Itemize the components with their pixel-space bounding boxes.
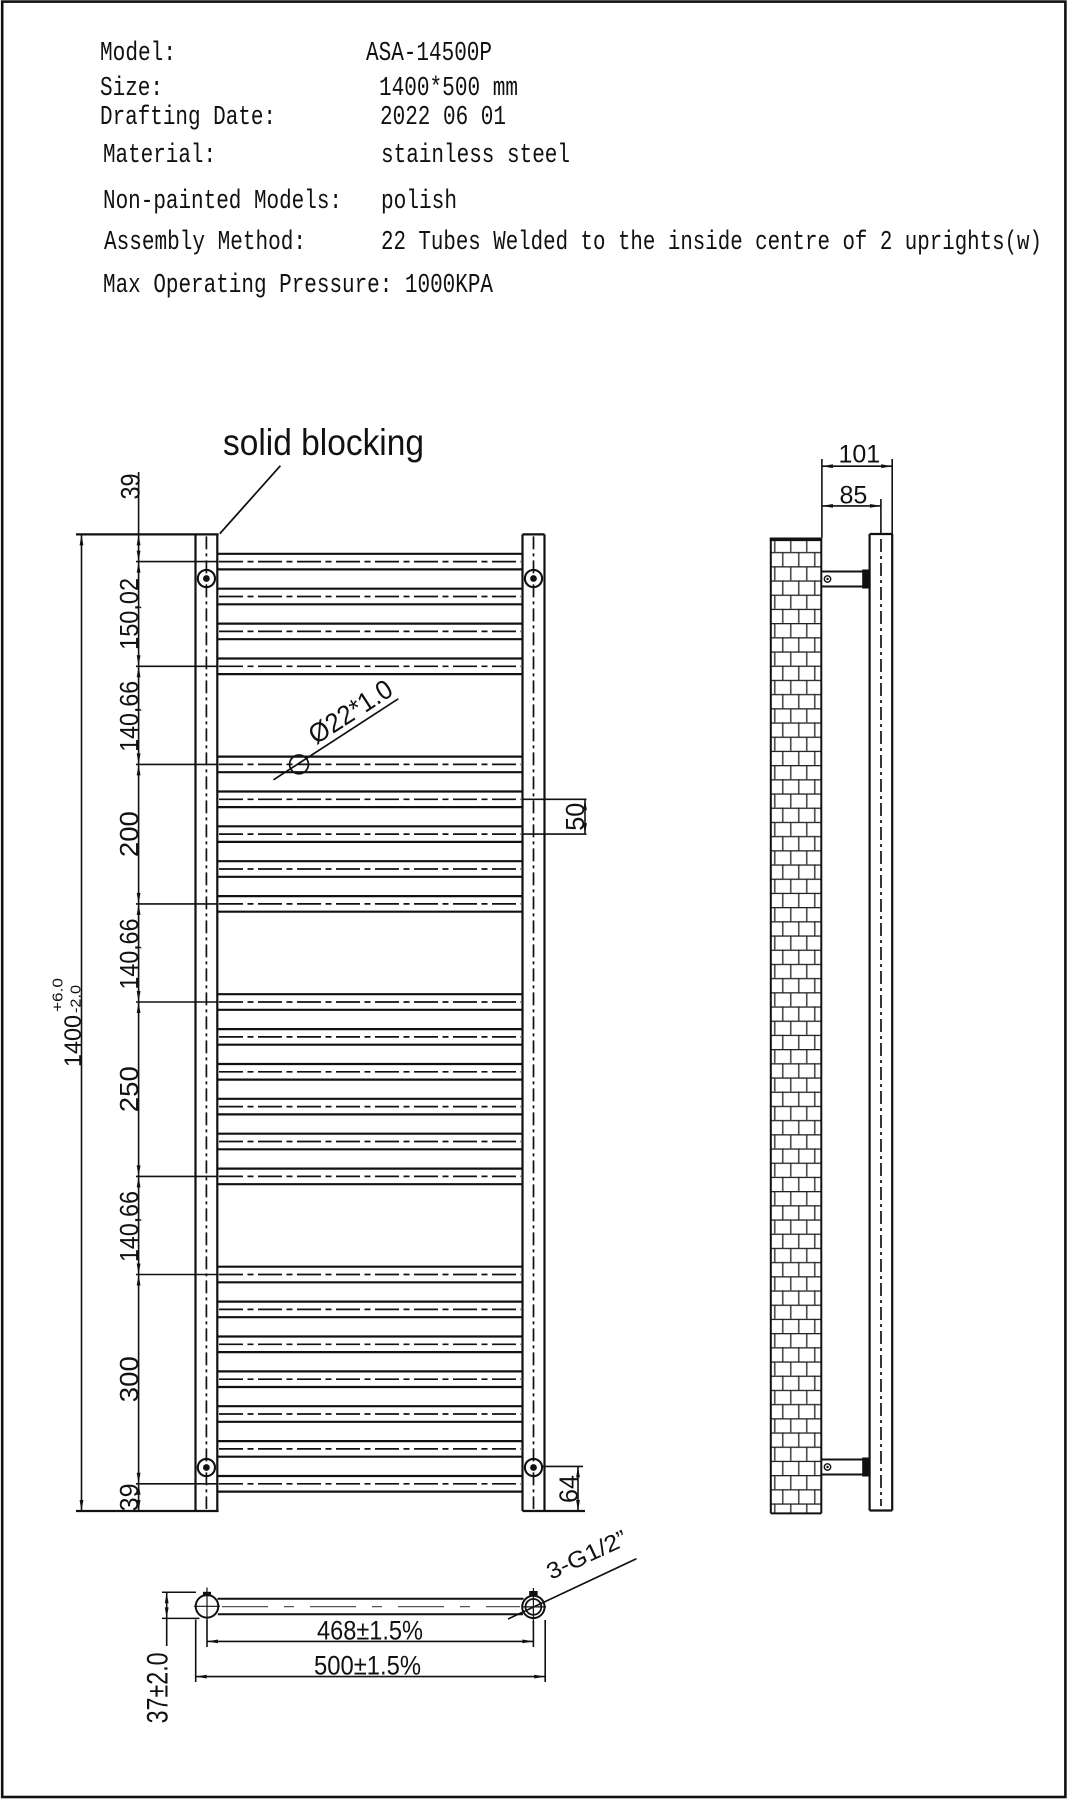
svg-text:3-G1/2”: 3-G1/2”	[542, 1525, 631, 1585]
svg-text:300: 300	[114, 1356, 144, 1402]
svg-text:Non-painted Models:: Non-painted Models:	[103, 187, 342, 217]
svg-text:39: 39	[116, 474, 146, 500]
svg-text:64: 64	[554, 1475, 584, 1503]
svg-text:solid blocking: solid blocking	[223, 422, 424, 463]
svg-text:Size:: Size:	[100, 74, 163, 104]
svg-text:101: 101	[839, 441, 881, 469]
svg-text:85: 85	[840, 482, 868, 510]
svg-text:1400: 1400	[60, 1015, 87, 1067]
svg-text:Max Operating Pressure: 1000KP: Max Operating Pressure: 1000KPA	[103, 271, 494, 301]
svg-text:140,66: 140,66	[114, 919, 144, 990]
svg-text:+6.0: +6.0	[50, 978, 67, 1012]
svg-text:stainless steel: stainless steel	[381, 141, 570, 171]
svg-text:Assembly Method:: Assembly Method:	[104, 228, 306, 258]
svg-text:22 Tubes Welded to the inside: 22 Tubes Welded to the inside centre of …	[381, 228, 1042, 258]
svg-text:150,02: 150,02	[114, 578, 144, 650]
svg-text:468±1.5%: 468±1.5%	[317, 1616, 423, 1646]
svg-text:39: 39	[114, 1483, 144, 1511]
svg-text:250: 250	[114, 1066, 144, 1112]
svg-text:200: 200	[114, 811, 144, 857]
svg-text:2022 06 01: 2022 06 01	[380, 103, 506, 133]
svg-text:Ø22*1.0: Ø22*1.0	[303, 674, 398, 750]
svg-text:Material:: Material:	[103, 141, 216, 171]
svg-text:50: 50	[560, 803, 590, 831]
svg-text:1400*500 mm: 1400*500 mm	[379, 74, 518, 104]
svg-text:polish: polish	[381, 187, 457, 217]
svg-text:500±1.5%: 500±1.5%	[314, 1651, 421, 1681]
svg-text:Drafting Date:: Drafting Date:	[100, 103, 276, 133]
svg-text:140,66: 140,66	[114, 681, 144, 752]
svg-text:140,66: 140,66	[114, 1191, 144, 1262]
svg-text:Model:: Model:	[100, 39, 176, 69]
svg-text:37±2.0: 37±2.0	[142, 1652, 175, 1723]
svg-text:ASA-14500P: ASA-14500P	[366, 39, 492, 69]
svg-text:-2.0: -2.0	[68, 985, 85, 1013]
